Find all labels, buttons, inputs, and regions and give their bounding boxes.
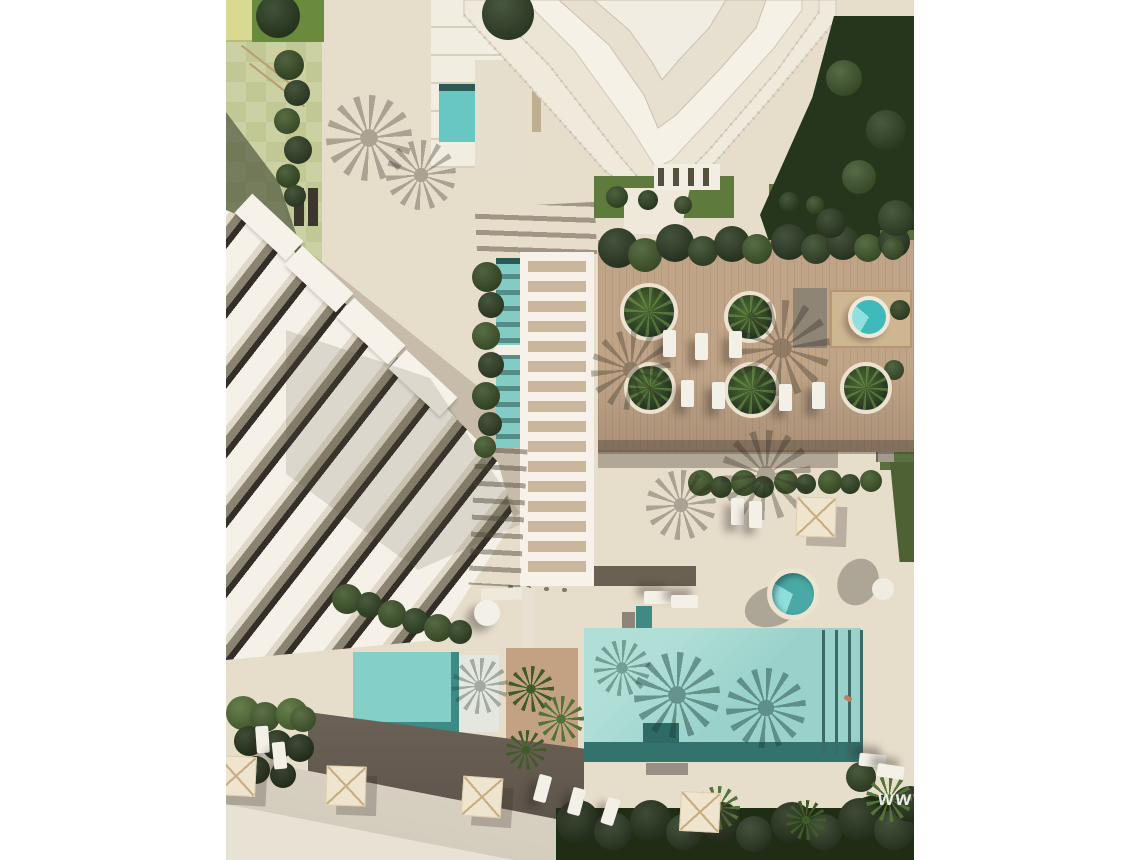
hedge-bl [286,734,314,762]
tree [866,110,906,150]
canopy [742,234,772,264]
hedge [472,322,500,350]
hedge [478,412,502,436]
tree [284,185,306,207]
rendering-canvas: www. [226,0,914,860]
sun-lounger [255,726,270,754]
lawn-strip-bush [890,300,910,320]
palm-shadow-on-shelf [452,658,508,714]
square-parasol [226,755,257,797]
sun-lounger [663,330,676,357]
tree [284,80,310,106]
sun-lounger [731,498,744,525]
sun-lounger [644,591,671,604]
tree [826,60,862,96]
tree [816,208,846,238]
palm-shadow-in-pool [726,668,806,748]
scene-props [226,0,914,860]
hedge-bl [290,706,316,732]
tree [274,50,304,80]
bush [674,196,692,214]
bush [606,186,628,208]
bush-row [860,470,882,492]
square-parasol [325,765,366,806]
palm-shadow-in-pool [594,640,650,696]
hedge [478,352,504,378]
palm-tree [506,730,546,770]
lawn-strip-bush [882,238,904,260]
palm-tree [538,696,584,742]
tree [274,108,300,134]
sun-lounger [671,595,698,608]
hedge-diag [448,620,472,644]
watermark-text: www. [877,788,914,811]
bush [638,190,658,210]
sun-lounger [695,333,708,360]
sun-lounger [749,501,762,528]
palm-shadow [591,330,671,410]
hedge [472,382,500,410]
sun-lounger [729,331,742,358]
hedge [472,262,502,292]
bush-row [840,474,860,494]
round-planter [840,362,892,414]
hedge [474,436,496,458]
sun-lounger [533,774,553,803]
bottom-green [736,816,772,852]
tree [284,136,312,164]
sun-lounger [681,380,694,407]
square-parasol [679,791,721,833]
palm-tree [786,800,826,840]
sun-lounger [712,382,725,409]
tree [878,200,914,236]
bush [779,192,799,212]
hedge [478,292,504,318]
tree [482,0,534,40]
sun-lounger [779,384,792,411]
tree [842,160,876,194]
palm-shadow [646,470,716,540]
bush-row [818,470,842,494]
sun-lounger [812,382,825,409]
lawn-tree [256,0,300,38]
palm-shadow [386,140,456,210]
square-parasol [461,776,504,819]
sun-lounger [272,741,288,769]
square-parasol [795,496,836,537]
